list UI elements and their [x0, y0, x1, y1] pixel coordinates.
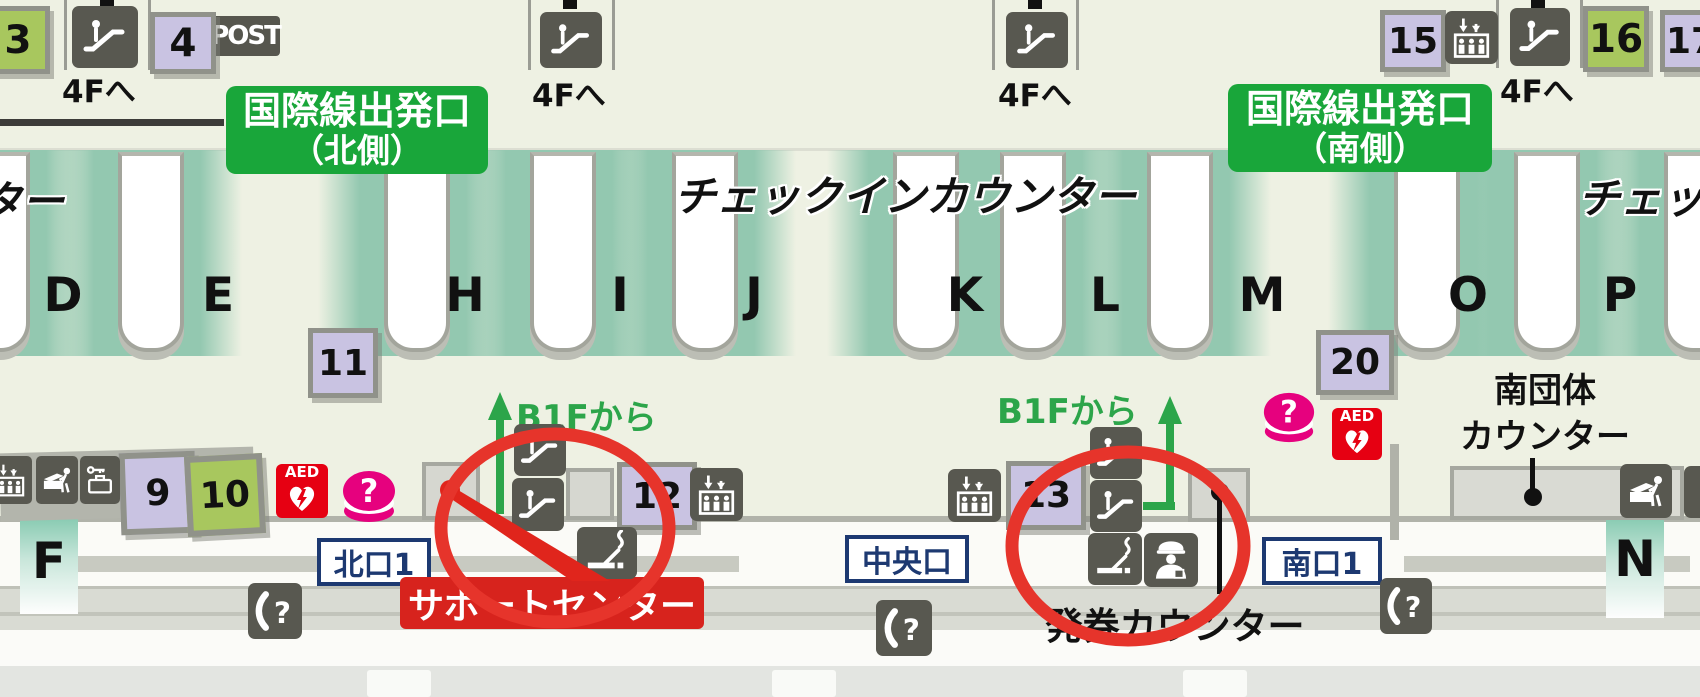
terminal-floor-map: F N ンター チェックインカウンター チェック D E H I J K L M… — [0, 0, 1700, 697]
annotation-overlay — [0, 0, 1700, 697]
support-center-leader — [440, 480, 610, 581]
highlight-circle-smoking — [441, 434, 669, 622]
south-group-counter-pin — [1524, 458, 1542, 506]
highlight-circle-ticket-counter — [1012, 452, 1244, 640]
